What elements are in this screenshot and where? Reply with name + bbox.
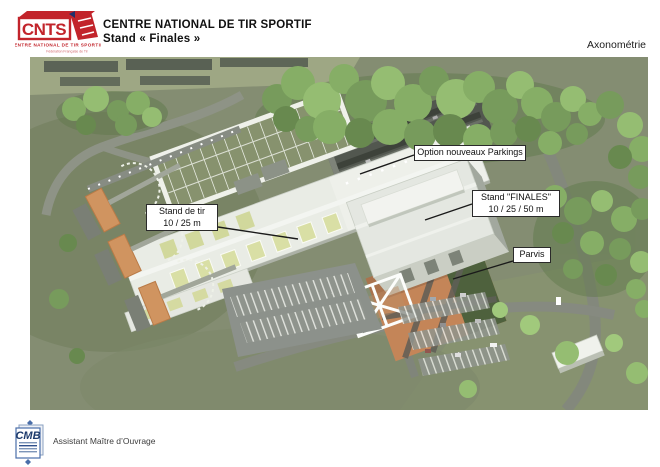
cnts-logo-line1: CENTRE NATIONAL DE TIR SPORTIF <box>15 43 101 48</box>
cmb-logo-line <box>19 448 37 449</box>
callout-stand-de-tir-line2: 10 / 25 m <box>149 218 215 230</box>
axonometric-rendering: Option nouveaux Parkings Stand "FINALES"… <box>30 57 648 410</box>
cmb-logo-line <box>19 451 37 452</box>
callout-parvis-text: Parvis <box>516 249 548 261</box>
callout-stand-de-tir: Stand de tir 10 / 25 m <box>146 204 218 231</box>
cnts-logo-acronym: CNTS <box>22 20 66 39</box>
page-title: CENTRE NATIONAL DE TIR SPORTIF <box>103 18 312 32</box>
page-subtitle: Stand « Finales » <box>103 32 312 46</box>
footer-role-text: Assistant Maître d’Ouvrage <box>53 436 156 446</box>
presentation-slide: CNTS CENTRE NATIONAL DE TIR SPORTIF Fédé… <box>0 0 660 467</box>
callout-parvis: Parvis <box>513 247 551 263</box>
cmb-logo-bottom-diamond <box>25 459 31 465</box>
scene-svg <box>30 57 648 410</box>
cmb-logo-line <box>19 445 37 446</box>
callout-finales-line1: Stand "FINALES" <box>475 192 557 204</box>
haze-overlay <box>30 57 648 410</box>
cnts-logo-flag <box>71 12 98 40</box>
cnts-logo: CNTS CENTRE NATIONAL DE TIR SPORTIF Fédé… <box>15 8 101 61</box>
cmb-logo-acronym: CMB <box>15 430 40 442</box>
cmb-logo-line <box>19 442 37 443</box>
callout-parkings: Option nouveaux Parkings <box>414 145 526 161</box>
callout-finales-line2: 10 / 25 / 50 m <box>475 204 557 216</box>
callout-finales: Stand "FINALES" 10 / 25 / 50 m <box>472 190 560 217</box>
callout-stand-de-tir-line1: Stand de tir <box>149 206 215 218</box>
cmb-logo: CMB <box>10 419 50 467</box>
view-type-label: Axonométrie <box>587 39 646 51</box>
cnts-logo-line2: Fédération Française de Tir <box>46 50 88 54</box>
title-block: CENTRE NATIONAL DE TIR SPORTIF Stand « F… <box>103 18 312 46</box>
callout-parkings-text: Option nouveaux Parkings <box>417 147 523 159</box>
